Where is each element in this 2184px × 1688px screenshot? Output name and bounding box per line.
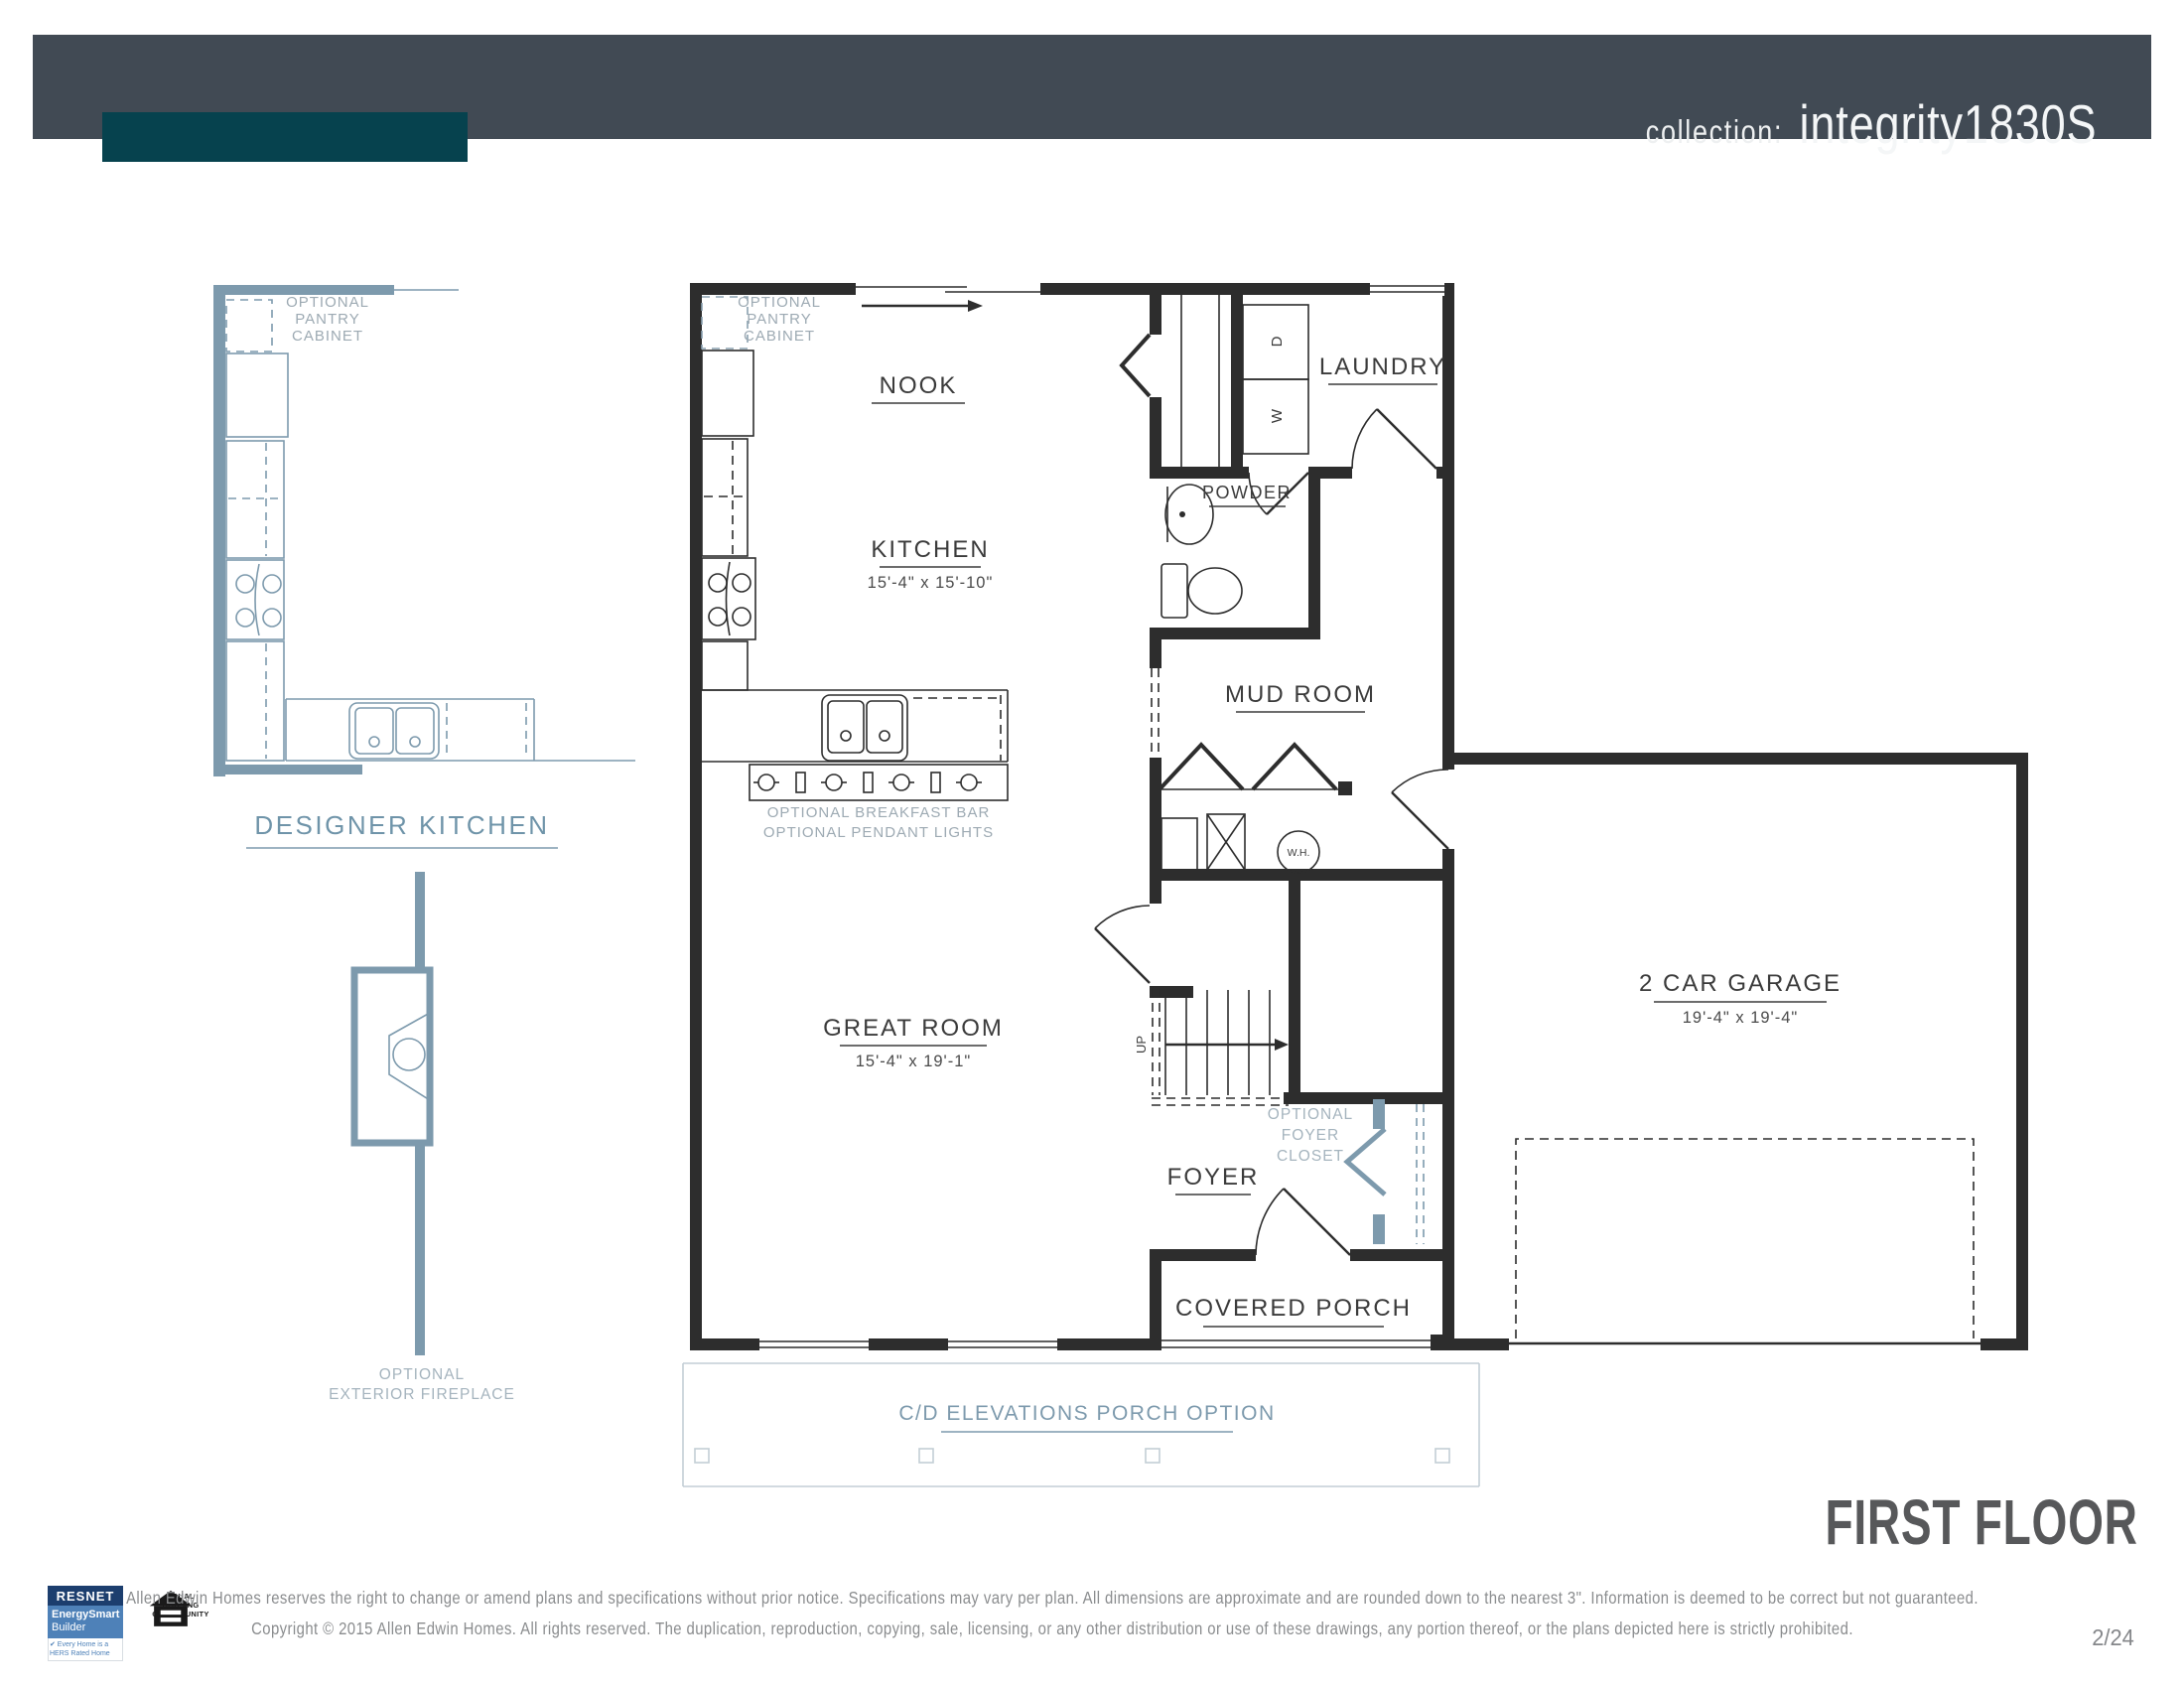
kitchen-label: KITCHEN [871,536,989,563]
stairs: UP [1134,988,1289,1105]
foyer-label: FOYER [1167,1164,1260,1191]
resnet-tagline: ✔ Every Home is a HERS Rated Home [48,1638,123,1661]
kitchen-dims: 15'-4" x 15'-10" [868,574,994,592]
washer-dryer: D W [1243,305,1308,454]
pantry-note-1: OPTIONAL [738,294,821,311]
powder-label: POWDER [1202,483,1292,502]
pendant-lights-note: OPTIONAL PENDANT LIGHTS [763,824,994,841]
designer-pantry-note-2: PANTRY [295,311,359,328]
disclaimer-line-1: Allen Edwin Homes reserves the right to … [126,1583,1979,1614]
optional-foyer-closet: OPTIONAL FOYER CLOSET [1268,1099,1424,1244]
resnet-line1: EnergySmart [52,1609,119,1621]
great-room-label: GREAT ROOM [823,1015,1004,1042]
disclaimer-line-2: Copyright © 2015 Allen Edwin Homes. All … [126,1614,1979,1644]
page-title: FIRST FLOOR [1826,1485,2138,1559]
foyer-closet-note-1: OPTIONAL [1268,1106,1353,1123]
fireplace-drawing: OPTIONAL EXTERIOR FIREPLACE [329,872,515,1403]
hall-bifold-door [1122,335,1150,396]
door-swings [1095,409,1448,1255]
powder-fixtures [1161,485,1242,618]
nook-label: NOOK [880,372,958,399]
mud-room-label: MUD ROOM [1225,681,1376,708]
designer-pantry-note-1: OPTIONAL [286,294,369,311]
foyer-closet-note-2: FOYER [1282,1127,1339,1144]
stairs-up-label: UP [1134,1036,1149,1054]
fireplace-note-1: OPTIONAL [379,1366,465,1383]
garage-door-dashed [1516,1139,1974,1338]
resnet-line2: Builder [52,1621,119,1634]
pantry-note-2: PANTRY [747,311,811,328]
dryer-label: D [1269,336,1286,347]
washer-label: W [1269,408,1286,423]
designer-kitchen-drawing: OPTIONAL PANTRY CABINET DESIGNER KITCHEN [213,285,635,848]
fireplace-note-2: EXTERIOR FIREPLACE [329,1386,515,1403]
floor-plan-canvas: OPTIONAL PANTRY CABINET DESIGNER KITCHEN… [0,0,2184,1688]
pantry-note-3: CABINET [744,328,815,345]
porch-option-outline: C/D ELEVATIONS PORCH OPTION [683,1363,1479,1486]
laundry-label: LAUNDRY [1319,353,1446,380]
page-number: 2/24 [2092,1624,2134,1651]
designer-pantry-note-3: CABINET [292,328,363,345]
foyer-closet-note-3: CLOSET [1277,1148,1344,1165]
main-floor-plan: D W W.H. [683,282,2028,1486]
breakfast-bar-note: OPTIONAL BREAKFAST BAR [767,804,991,821]
great-room-dims: 15'-4" x 19'-1" [856,1053,971,1070]
pendant-lights [753,773,982,792]
porch-option-label: C/D ELEVATIONS PORCH OPTION [898,1402,1275,1425]
covered-porch-label: COVERED PORCH [1175,1295,1412,1322]
designer-kitchen-title: DESIGNER KITCHEN [254,810,549,840]
footer-disclaimer: Allen Edwin Homes reserves the right to … [126,1583,1979,1644]
garage-label: 2 CAR GARAGE [1639,970,1842,997]
garage-dims: 19'-4" x 19'-4" [1683,1009,1798,1027]
mudroom-storage: W.H. [1160,745,1352,873]
resnet-brand: RESNET [48,1586,123,1606]
water-heater-label: W.H. [1288,847,1310,859]
resnet-logo: RESNET EnergySmart Builder ✔ Every Home … [48,1586,123,1661]
